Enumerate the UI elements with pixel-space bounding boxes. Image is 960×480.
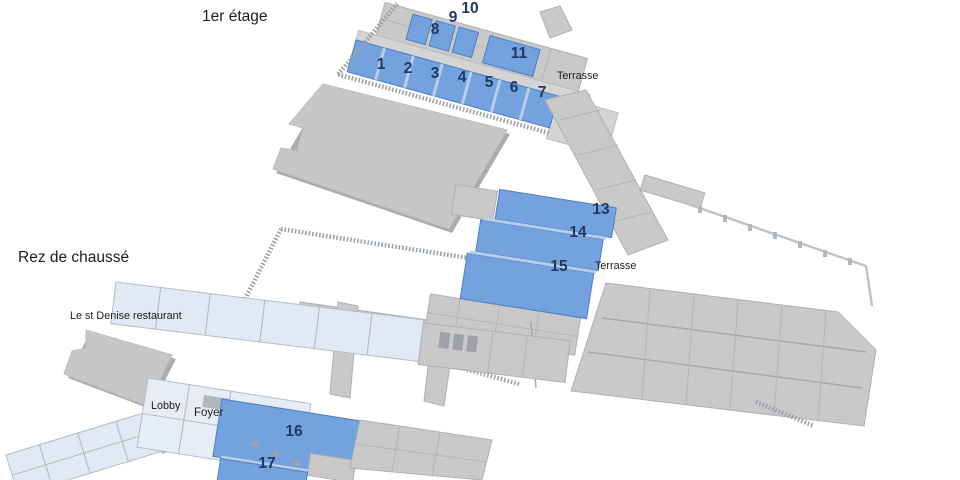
ground-floor-terrace-label: Terrasse: [595, 260, 636, 272]
room-7-label: 7: [538, 84, 547, 101]
first-floor-title: 1er étage: [202, 8, 268, 25]
roof-piece: [540, 6, 572, 38]
room-16-label: 16: [285, 423, 303, 440]
lobby-label: Lobby: [151, 400, 181, 412]
room-13-label: 13: [592, 201, 610, 218]
room-3-label: 3: [431, 65, 440, 82]
foyer-label: Foyer: [194, 407, 224, 419]
room-2-label: 2: [404, 60, 413, 77]
room-1-label: 1: [377, 56, 386, 73]
room-15-label: 15: [550, 258, 568, 275]
ground-floor-title: Rez de chaussé: [18, 249, 129, 266]
first-floor-terrace-label: Terrasse: [557, 70, 598, 82]
terrace-pillar-fence: [688, 204, 872, 306]
room-14-label: 14: [569, 224, 587, 241]
room-11-label: 11: [511, 45, 528, 62]
right-wing: [571, 283, 876, 426]
room-9-label: 9: [449, 9, 458, 26]
restaurant-label: Le st Denise restaurant: [70, 310, 182, 322]
room-17-label: 17: [258, 455, 275, 472]
venue-floorplan-map: 1er étage Rez de chaussé Terrasse Terras…: [0, 0, 960, 480]
rooms-right-of-16: [350, 420, 492, 480]
courtyard-fence-left: [244, 229, 281, 301]
room-6-label: 6: [510, 79, 519, 96]
room-10-label: 10: [461, 0, 478, 17]
room-8-label: 8: [431, 21, 440, 38]
room-4-label: 4: [458, 69, 467, 86]
floorplan-canvas: 1er étage Rez de chaussé Terrasse Terras…: [0, 0, 960, 480]
room-5-label: 5: [485, 74, 494, 91]
corridor-stub: [640, 175, 705, 208]
